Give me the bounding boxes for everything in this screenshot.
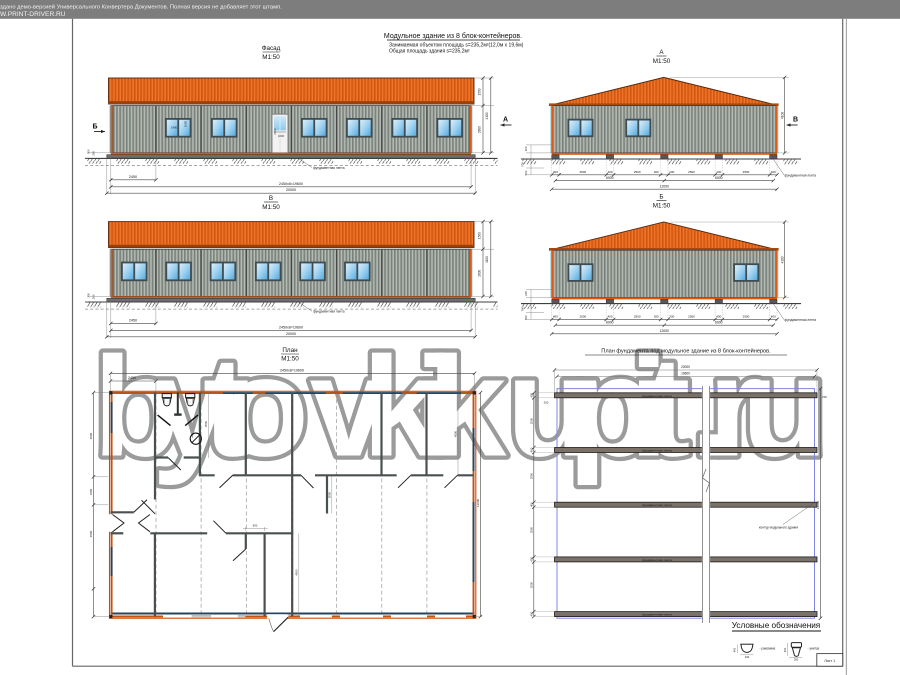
svg-text:6000: 6000 — [715, 320, 723, 324]
svg-text:400: 400 — [607, 170, 612, 174]
svg-text:200: 200 — [524, 146, 528, 151]
svg-text:Условные обозначения: Условные обозначения — [732, 621, 820, 630]
svg-text:2000: 2000 — [327, 491, 331, 498]
svg-text:фундаментная лента: фундаментная лента — [642, 449, 672, 453]
svg-text:400: 400 — [529, 557, 533, 562]
svg-text:4500: 4500 — [89, 530, 93, 537]
svg-text:2450х8=19600: 2450х8=19600 — [280, 368, 304, 372]
svg-text:2500: 2500 — [579, 315, 586, 319]
svg-text:19600: 19600 — [681, 372, 690, 376]
svg-text:400: 400 — [771, 315, 776, 319]
svg-text:2500: 2500 — [529, 417, 533, 424]
svg-text:фундаментная лента: фундаментная лента — [785, 318, 817, 322]
svg-text:фундаментная лента: фундаментная лента — [642, 394, 672, 398]
svg-text:фундаментная лента: фундаментная лента — [642, 503, 672, 507]
svg-text:План: План — [282, 347, 298, 354]
svg-text:400: 400 — [607, 315, 612, 319]
svg-text:М1:50: М1:50 — [653, 203, 671, 210]
svg-text:200: 200 — [654, 170, 660, 174]
svg-text:700: 700 — [87, 293, 91, 298]
svg-text:фундаментная лента: фундаментная лента — [642, 613, 672, 617]
svg-text:фундаментная лента: фундаментная лента — [313, 309, 345, 313]
svg-text:700: 700 — [521, 162, 525, 167]
svg-text:400: 400 — [716, 170, 721, 174]
svg-text:2500: 2500 — [634, 170, 641, 174]
svg-text:700: 700 — [521, 306, 525, 311]
svg-text:фундаментная лента: фундаментная лента — [313, 166, 345, 170]
svg-text:400: 400 — [733, 647, 737, 652]
svg-text:1400: 1400 — [171, 126, 178, 130]
svg-text:4100: 4100 — [780, 256, 784, 263]
svg-text:4100: 4100 — [485, 256, 489, 263]
svg-text:Фасад: Фасад — [262, 45, 281, 52]
svg-text:2450х8=19600: 2450х8=19600 — [279, 325, 303, 329]
svg-text:В: В — [269, 195, 273, 202]
svg-text:200: 200 — [654, 315, 660, 319]
svg-text:20000: 20000 — [286, 332, 296, 336]
svg-text:1000: 1000 — [184, 120, 188, 127]
svg-text:12000: 12000 — [816, 500, 820, 509]
svg-text:900: 900 — [253, 524, 258, 528]
svg-text:200: 200 — [669, 315, 674, 319]
svg-text:20000: 20000 — [681, 365, 690, 369]
svg-text:М1:50: М1:50 — [281, 356, 299, 363]
svg-text:2500: 2500 — [634, 315, 641, 319]
svg-text:3500: 3500 — [204, 420, 208, 427]
svg-text:План фундамента под модульное: План фундамента под модульное здание из … — [601, 348, 771, 355]
svg-text:4500: 4500 — [454, 430, 458, 437]
svg-text:2450: 2450 — [129, 318, 137, 322]
svg-text:В: В — [793, 117, 798, 124]
svg-text:400: 400 — [529, 393, 533, 398]
svg-text:2500: 2500 — [529, 526, 533, 533]
svg-text:12000: 12000 — [476, 498, 480, 507]
svg-text:vkik: vkik — [310, 328, 508, 487]
svg-text:2450: 2450 — [128, 376, 136, 380]
svg-text:400: 400 — [529, 502, 533, 507]
svg-text:- унитаз: - унитаз — [808, 646, 820, 650]
svg-text:М1:50: М1:50 — [262, 54, 280, 61]
svg-text:2000: 2000 — [273, 128, 277, 135]
svg-text:- раковина: - раковина — [760, 646, 776, 650]
svg-text:Лист 1: Лист 1 — [824, 659, 835, 663]
svg-text:430: 430 — [745, 655, 750, 659]
svg-text:4100: 4100 — [485, 112, 489, 119]
svg-text:400: 400 — [529, 447, 533, 452]
svg-text:12000: 12000 — [660, 329, 670, 333]
svg-text:400: 400 — [553, 170, 558, 174]
svg-text:400: 400 — [783, 647, 787, 652]
svg-text:200: 200 — [92, 151, 96, 156]
svg-text:200: 200 — [822, 395, 827, 399]
svg-text:400: 400 — [771, 170, 776, 174]
svg-text:200: 200 — [92, 294, 96, 299]
svg-text:Занимаемая объектом площадь s: Занимаемая объектом площадь s=235,2м²(12… — [389, 42, 524, 48]
svg-text:2600: 2600 — [477, 269, 481, 276]
svg-text:2600: 2600 — [477, 126, 481, 133]
svg-text:200: 200 — [524, 291, 528, 296]
svg-text:контур модульного здания: контур модульного здания — [759, 526, 798, 530]
svg-text:W.PRINT-DRIVER.RU: W.PRINT-DRIVER.RU — [0, 11, 66, 18]
svg-text:Общая площадь здания s=235,: Общая площадь здания s=235,2м² — [389, 49, 470, 55]
svg-text:М1:50: М1:50 — [262, 204, 280, 211]
svg-text:2500: 2500 — [529, 472, 533, 479]
svg-text:400: 400 — [529, 611, 533, 616]
svg-text:6000: 6000 — [606, 320, 614, 324]
svg-text:350: 350 — [794, 657, 799, 661]
svg-text:500: 500 — [524, 315, 528, 320]
svg-text:1500: 1500 — [89, 488, 93, 495]
svg-text:2500: 2500 — [688, 170, 695, 174]
svg-text:4100: 4100 — [780, 112, 784, 119]
svg-text:200: 200 — [544, 401, 549, 405]
svg-text:12000: 12000 — [660, 184, 670, 188]
svg-text:700: 700 — [87, 149, 91, 154]
svg-text:1500: 1500 — [477, 88, 481, 95]
svg-text:2500: 2500 — [743, 170, 750, 174]
svg-text:20000: 20000 — [286, 188, 296, 192]
svg-text:2500: 2500 — [579, 170, 586, 174]
svg-text:фундаментная лента: фундаментная лента — [785, 173, 817, 177]
svg-text:6000: 6000 — [606, 176, 614, 180]
svg-text:А: А — [503, 117, 508, 124]
svg-text:200: 200 — [669, 170, 674, 174]
svg-text:2450х8=19600: 2450х8=19600 — [279, 182, 303, 186]
svg-text:М1:50: М1:50 — [653, 58, 671, 65]
svg-text:4500: 4500 — [294, 569, 298, 576]
svg-text:1000: 1000 — [278, 134, 285, 138]
svg-text:4500: 4500 — [89, 432, 93, 439]
svg-text:Б: Б — [92, 124, 97, 131]
svg-text:здано демо-версией Универсальн: здано демо-версией Универсального Конвер… — [0, 3, 282, 10]
svg-text:400: 400 — [716, 315, 721, 319]
svg-text:Модульное здание из 8 блок-к: Модульное здание из 8 блок-контейнеров. — [384, 32, 522, 40]
svg-text:Б: Б — [659, 194, 663, 201]
svg-text:6000: 6000 — [715, 176, 723, 180]
svg-text:500: 500 — [524, 170, 528, 175]
svg-text:2500: 2500 — [529, 581, 533, 588]
svg-text:400: 400 — [553, 315, 558, 319]
svg-text:фундаментная лента: фундаментная лента — [642, 558, 672, 562]
svg-text:2450: 2450 — [129, 175, 137, 179]
svg-text:2500: 2500 — [743, 315, 750, 319]
svg-text:2500: 2500 — [688, 315, 695, 319]
svg-text:1500: 1500 — [477, 232, 481, 239]
